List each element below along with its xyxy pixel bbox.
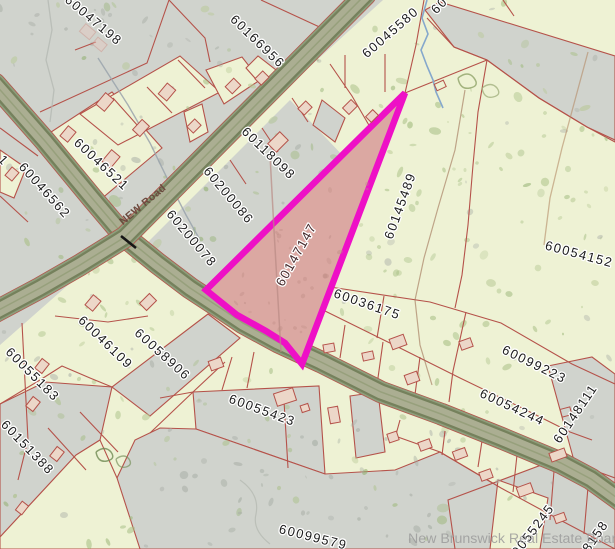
svg-text:New Brunswick Real Estate Boar: New Brunswick Real Estate Board (408, 531, 615, 547)
